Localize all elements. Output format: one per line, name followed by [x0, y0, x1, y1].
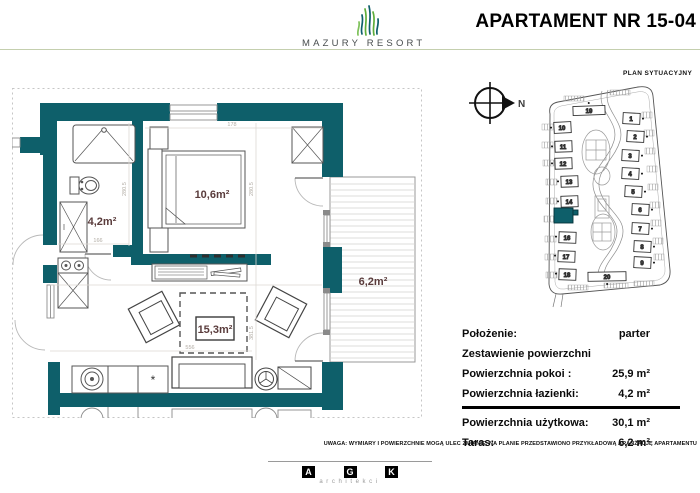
site-building-5 [625, 186, 647, 198]
table-row-areas-heading: Zestawienie powierzchni [462, 344, 694, 364]
row-value: 30,1 m² [612, 417, 694, 429]
living-area-label: 15,3m² [198, 324, 233, 336]
side-door-arc [15, 320, 45, 350]
table-row-usable-area: Powierzchnia użytkowa: 30,1 m² [462, 413, 694, 433]
site-building-7 [632, 223, 654, 235]
table-row-bathroom-area: Powierzchnia łazienki: 4,2 m² [462, 384, 694, 404]
table-row-rooms-area: Powierzchnia pokoi : 25,9 m² [462, 364, 694, 384]
mazury-resort-logo-icon [348, 3, 384, 37]
bedroom-area-label: 10,6m² [195, 189, 230, 201]
vanity-sink [60, 202, 87, 252]
svg-text:11: 11 [560, 145, 567, 151]
row-value: parter [619, 328, 694, 340]
sofa [172, 357, 252, 388]
armchair [128, 291, 179, 342]
fan-washer [255, 368, 277, 390]
row-label: Położenie: [462, 328, 517, 340]
siteplan-title: PLAN SYTUACYJNY [623, 70, 692, 77]
svg-text:20: 20 [604, 275, 611, 281]
header-divider [0, 49, 700, 50]
row-value: 25,9 m² [612, 368, 694, 380]
bedroom-terrace-door-arc [295, 178, 323, 206]
bathroom-area-label: 4,2m² [88, 216, 117, 228]
wardrobe [292, 127, 323, 163]
stove-symbol: * [151, 373, 156, 387]
svg-text:19: 19 [586, 109, 593, 115]
kitchen-counter: * [72, 366, 168, 393]
agk-caption: architekci [298, 479, 402, 485]
disclaimer-text: UWAGA: WYMIARY I POWIERZCHNIE MOGĄ ULEC … [324, 441, 697, 447]
svg-text:12: 12 [560, 162, 567, 168]
bathroom-door-arc [85, 254, 111, 280]
table-row-location: Położenie: parter [462, 324, 694, 344]
site-building-3 [622, 150, 644, 162]
toilet [70, 177, 99, 194]
apartment-card-page: MAZURY RESORT APARTAMENT NR 15-04 [0, 0, 700, 493]
svg-text:10: 10 [559, 126, 566, 132]
site-building-1 [623, 113, 645, 125]
terrace-area [330, 177, 415, 362]
site-road [593, 90, 623, 281]
svg-text:16: 16 [564, 236, 571, 242]
details-table: Położenie: parter Zestawienie powierzchn… [462, 324, 694, 453]
floor-plan: * 178 280.5 280.5 166 556 [12, 88, 422, 418]
compass-north-label: N [518, 99, 525, 110]
site-building-15-highlighted [554, 208, 578, 223]
sideboard [152, 264, 247, 281]
north-arrow [502, 96, 515, 110]
site-buildings: 1 2 3 4 5 6 7 8 9 10 11 12 13 1 [550, 101, 655, 285]
site-greens [582, 130, 615, 250]
site-plan: 1 2 3 4 5 6 7 8 9 10 11 12 13 1 [540, 84, 692, 308]
svg-text:18: 18 [564, 273, 571, 279]
dim-bathroom-height: 280.5 [122, 182, 128, 196]
mirror-strip [81, 407, 311, 418]
dim-living-width: 556 [185, 345, 194, 351]
entry-door-arc [13, 235, 43, 265]
storage-cabinet [278, 367, 311, 389]
page-title: APARTAMENT NR 15-04 [475, 11, 696, 33]
bed-headboard [148, 149, 162, 228]
fridge [58, 273, 88, 308]
row-label: Powierzchnia użytkowa: [462, 417, 589, 429]
dim-bedroom-height: 280.5 [249, 182, 255, 196]
armchair [255, 286, 306, 337]
nightstand [150, 127, 168, 149]
site-building-8 [634, 241, 656, 253]
row-value: 4,2 m² [618, 388, 694, 400]
dim-bedroom-width: 178 [227, 122, 236, 128]
site-building-9 [634, 257, 656, 269]
svg-text:13: 13 [566, 180, 573, 186]
row-label: Powierzchnia pokoi : [462, 368, 571, 380]
nightstand [150, 228, 168, 252]
agk-letter-k: K [385, 466, 398, 478]
row-label: Zestawienie powierzchni [462, 348, 591, 360]
agk-letter-g: G [344, 466, 357, 478]
dim-living-height: 381.5 [249, 326, 255, 340]
agk-letter-a: A [302, 466, 315, 478]
table-separator [462, 406, 680, 409]
architects-logo: A G K architekci [268, 461, 432, 485]
dim-bathroom-width: 166 [93, 238, 102, 244]
svg-text:14: 14 [566, 200, 573, 206]
brand-name: MAZURY RESORT [302, 38, 425, 49]
compass: N [466, 78, 528, 128]
row-label: Powierzchnia łazienki: [462, 388, 579, 400]
site-building-4 [622, 168, 644, 180]
cooktop-cabinet [58, 258, 88, 273]
terrace-area-label: 6,2m² [359, 276, 388, 288]
shower [73, 125, 135, 163]
svg-text:17: 17 [563, 255, 570, 261]
living-terrace-door-arc [295, 333, 323, 361]
